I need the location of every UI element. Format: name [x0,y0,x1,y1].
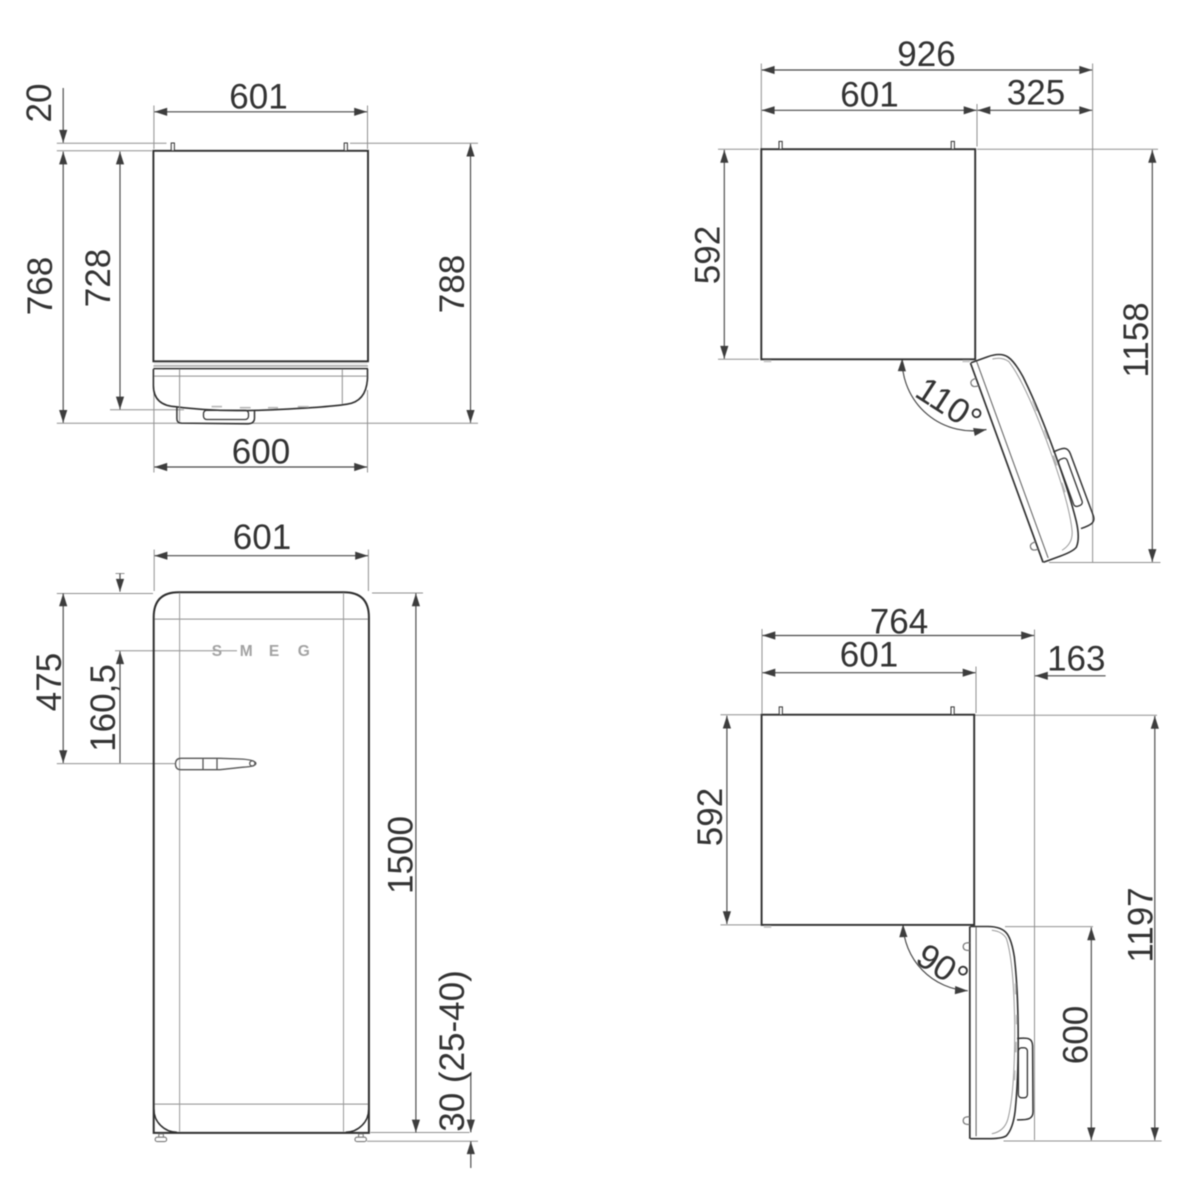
svg-text:788: 788 [433,255,472,313]
svg-text:600: 600 [232,433,290,472]
svg-text:160,5: 160,5 [84,664,123,752]
svg-text:601: 601 [840,636,898,675]
svg-text:325: 325 [1007,74,1065,113]
svg-text:1500: 1500 [382,816,421,894]
svg-text:592: 592 [691,788,730,846]
svg-text:728: 728 [79,249,118,307]
svg-text:601: 601 [840,76,898,115]
svg-text:475: 475 [30,653,69,711]
svg-text:926: 926 [897,35,955,74]
svg-text:601: 601 [233,518,291,557]
svg-text:600: 600 [1057,1006,1096,1064]
svg-text:768: 768 [21,257,60,315]
svg-text:163: 163 [1047,640,1105,679]
svg-text:E: E [269,643,279,660]
svg-text:G: G [298,643,310,660]
svg-text:20: 20 [20,84,59,123]
svg-text:592: 592 [689,226,728,284]
svg-text:M: M [240,643,253,660]
svg-text:601: 601 [229,78,287,117]
svg-text:30 (25-40): 30 (25-40) [433,970,472,1131]
svg-text:1197: 1197 [1122,887,1161,962]
svg-text:S: S [212,643,222,660]
svg-text:1158: 1158 [1117,302,1156,377]
svg-text:90°: 90° [909,936,975,998]
